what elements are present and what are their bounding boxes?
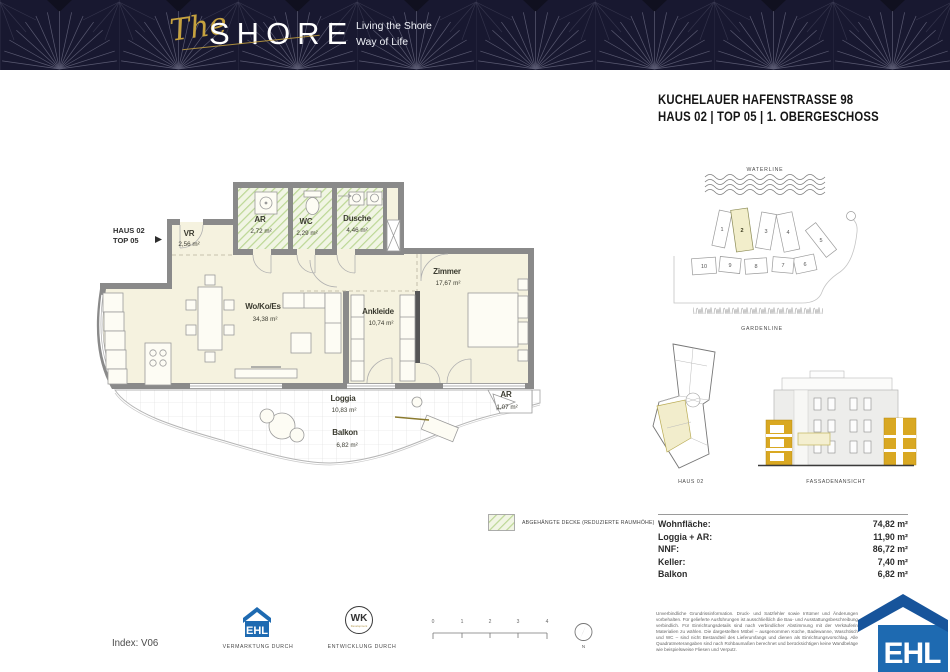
scale-tick-2: 2 bbox=[489, 619, 492, 625]
facade-body bbox=[774, 371, 898, 465]
art-deco-pattern-icon bbox=[0, 0, 950, 70]
scale-tick-1: 1 bbox=[461, 619, 464, 625]
room-ar2-area: 1,07 m² bbox=[496, 404, 517, 411]
area-value: 74,82 m² bbox=[873, 519, 908, 529]
svg-text:EHL: EHL bbox=[246, 625, 268, 637]
room-vr-area: 2,56 m² bbox=[178, 241, 199, 248]
area-label: Loggia + AR: bbox=[658, 532, 712, 542]
area-label: NNF: bbox=[658, 544, 679, 554]
building-10: 10 bbox=[701, 264, 707, 270]
room-balkon-name: Balkon bbox=[332, 428, 358, 437]
building-4: 4 bbox=[786, 230, 789, 236]
ehl-large-logo-icon: EHL bbox=[850, 586, 950, 672]
table-row: Keller: 7,40 m² bbox=[658, 557, 908, 567]
building-5: 5 bbox=[819, 238, 822, 244]
room-zimmer-name: Zimmer bbox=[433, 267, 461, 276]
facade-highlight-unit bbox=[798, 433, 830, 445]
site-plan: WATERLINE 1 2 3 4 5 6 7 bbox=[650, 160, 880, 350]
wk-logo-icon: WK Development bbox=[342, 604, 376, 640]
area-value: 7,40 m² bbox=[878, 557, 908, 567]
pointer-arrow-icon bbox=[155, 236, 162, 243]
gardenline-label: GARDENLINE bbox=[741, 326, 783, 332]
legend-hatch-swatch-icon bbox=[488, 514, 515, 531]
north-label: N bbox=[582, 644, 585, 649]
area-table: Wohnfläche: 74,82 m² Loggia + AR: 11,90 … bbox=[658, 514, 908, 582]
room-loggia-area: 10,83 m² bbox=[332, 407, 357, 414]
building-6: 6 bbox=[803, 262, 806, 268]
brand-tagline: Living the Shore Way of Life bbox=[356, 19, 432, 51]
area-label: Keller: bbox=[658, 557, 685, 567]
ehl-large-logo-text: EHL bbox=[884, 637, 942, 670]
facade-yellow-left bbox=[766, 420, 792, 465]
pointer-line2: TOP 05 bbox=[113, 236, 139, 245]
room-wohn-name: Wo/Ko/Es bbox=[245, 302, 281, 311]
room-dusche-area: 4,46 m² bbox=[346, 227, 367, 234]
room-zimmer-area: 17,67 m² bbox=[436, 280, 461, 287]
wk-logo-label: ENTWICKLUNG DURCH bbox=[312, 644, 412, 650]
floor-plan: HAUS 02 TOP 05 VR 2,56 m² AR 2,72 m² WC … bbox=[85, 165, 555, 475]
building-7: 7 bbox=[781, 263, 784, 269]
key-plan bbox=[645, 338, 737, 478]
room-ankleide-area: 10,74 m² bbox=[369, 320, 394, 327]
site-buildings bbox=[691, 208, 836, 275]
page-title-unit: HAUS 02 | TOP 05 | 1. OBERGESCHOSS bbox=[658, 109, 879, 124]
room-ar2-name: AR bbox=[500, 390, 512, 399]
facade-label: FASSADENANSICHT bbox=[752, 479, 920, 485]
tagline-line2: Way of Life bbox=[356, 35, 432, 51]
table-row: Wohnfläche: 74,82 m² bbox=[658, 519, 908, 529]
room-ar-area: 2,72 m² bbox=[250, 228, 271, 235]
waterline-label: WATERLINE bbox=[747, 167, 784, 173]
area-label: Balkon bbox=[658, 569, 687, 579]
brand-wordmark-shore: SHORE bbox=[209, 16, 354, 52]
header-banner: The SHORE Living the Shore Way of Life bbox=[0, 0, 950, 70]
room-loggia-name: Loggia bbox=[330, 394, 356, 403]
table-row: Balkon 6,82 m² bbox=[658, 569, 908, 579]
room-balkon-area: 6,82 m² bbox=[336, 442, 357, 449]
area-value: 86,72 m² bbox=[873, 544, 908, 554]
table-row: NNF: 86,72 m² bbox=[658, 544, 908, 554]
page: The SHORE Living the Shore Way of Life K… bbox=[0, 0, 950, 672]
ehl-small-logo-label: VERMARKTUNG DURCH bbox=[208, 644, 308, 650]
shaft bbox=[387, 220, 400, 251]
legend: ABGEHÄNGTE DECKE (REDUZIERTE RAUMHÖHE) bbox=[488, 514, 655, 531]
balcony-slab bbox=[115, 390, 540, 465]
area-value: 11,90 m² bbox=[873, 532, 908, 542]
unit-pointer: HAUS 02 TOP 05 bbox=[113, 226, 162, 245]
building-2: 2 bbox=[740, 228, 743, 234]
room-vr-name: VR bbox=[184, 229, 195, 238]
room-ankleide-name: Ankleide bbox=[362, 307, 394, 316]
site-marker-icon bbox=[847, 212, 856, 221]
facade-yellow-right bbox=[884, 418, 916, 465]
keyplan-label: HAUS 02 bbox=[645, 479, 737, 485]
building-9: 9 bbox=[728, 263, 731, 269]
room-wc-area: 2,29 m² bbox=[296, 230, 317, 237]
wk-logo-text: WK bbox=[351, 613, 368, 624]
area-value: 6,82 m² bbox=[878, 569, 908, 579]
water-waves-icon bbox=[705, 175, 825, 195]
tagline-line1: Living the Shore bbox=[356, 19, 432, 35]
ehl-small-logo-icon: EHL bbox=[240, 604, 274, 640]
garden-grass-icon bbox=[693, 306, 823, 320]
wk-logo-sub: Development bbox=[351, 624, 368, 628]
building-1: 1 bbox=[720, 227, 723, 233]
pointer-line1: HAUS 02 bbox=[113, 226, 145, 235]
scale-bar: 0 1 2 3 4 bbox=[428, 610, 558, 644]
legal-disclaimer: Unverbindliche Grundrissinformation. Dru… bbox=[656, 611, 858, 653]
room-wc-name: WC bbox=[300, 217, 313, 226]
page-title-address: KUCHELAUER HAFENSTRASSE 98 bbox=[658, 92, 853, 107]
room-wohn-area: 34,38 m² bbox=[253, 316, 278, 323]
plan-index: Index: V06 bbox=[112, 637, 158, 649]
room-ar-name: AR bbox=[254, 215, 266, 224]
scale-tick-3: 3 bbox=[517, 619, 520, 625]
legend-text: ABGEHÄNGTE DECKE (REDUZIERTE RAUMHÖHE) bbox=[522, 520, 655, 526]
north-arrow-icon: N bbox=[573, 622, 595, 652]
building-8: 8 bbox=[754, 264, 757, 270]
room-dusche-name: Dusche bbox=[343, 214, 371, 223]
table-row: Loggia + AR: 11,90 m² bbox=[658, 532, 908, 542]
scale-tick-4: 4 bbox=[546, 619, 549, 625]
facade-elevation bbox=[752, 368, 920, 470]
building-3: 3 bbox=[764, 229, 767, 235]
scale-tick-0: 0 bbox=[432, 619, 435, 625]
area-label: Wohnfläche: bbox=[658, 519, 711, 529]
